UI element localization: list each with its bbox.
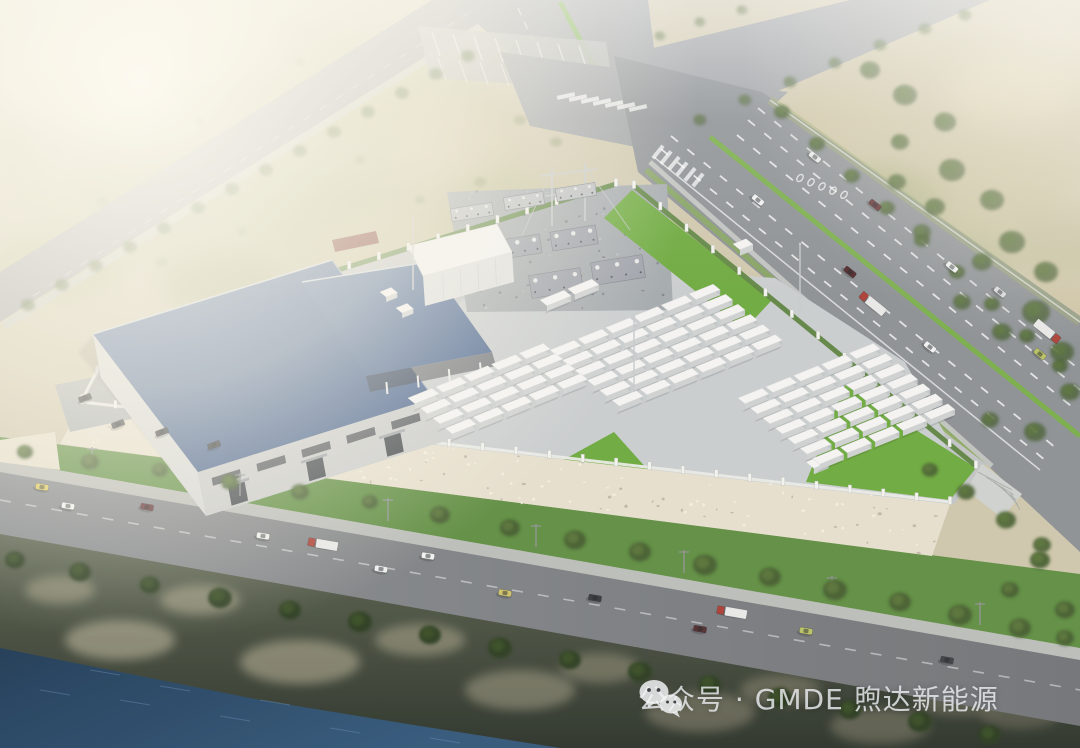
watermark: 公众号 · GMDE 煦达新能源 — [638, 678, 999, 718]
aerial-render-stage: 公众号 · GMDE 煦达新能源 — [0, 0, 1080, 748]
watermark-text: 公众号 · GMDE 煦达新能源 — [638, 678, 999, 718]
energy-storage-station-rendering — [0, 0, 1080, 748]
haze-overlay — [0, 0, 1080, 748]
wechat-icon — [638, 678, 686, 720]
